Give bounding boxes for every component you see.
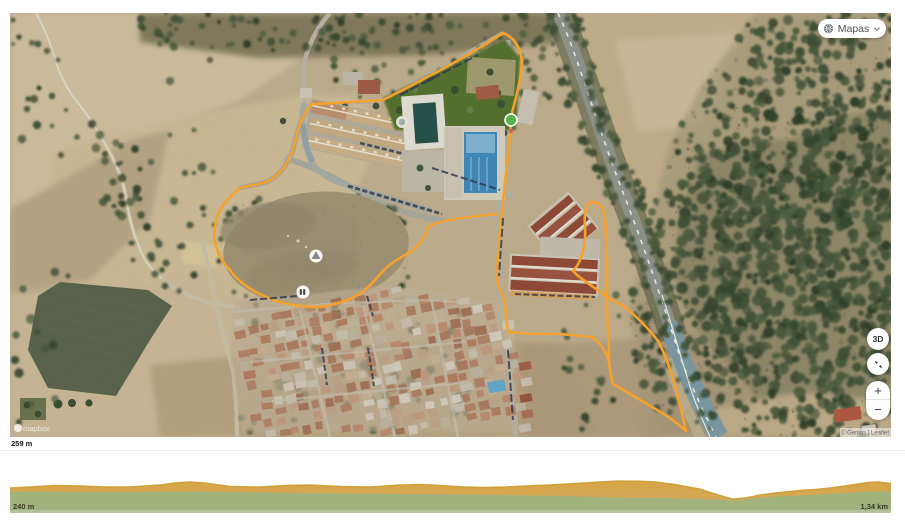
svg-text:240 m: 240 m [13,502,35,511]
svg-text:1,34 km: 1,34 km [860,502,888,511]
svg-text:mapbox: mapbox [23,424,50,433]
svg-text:© Genios | Leaflet: © Genios | Leaflet [841,430,889,437]
